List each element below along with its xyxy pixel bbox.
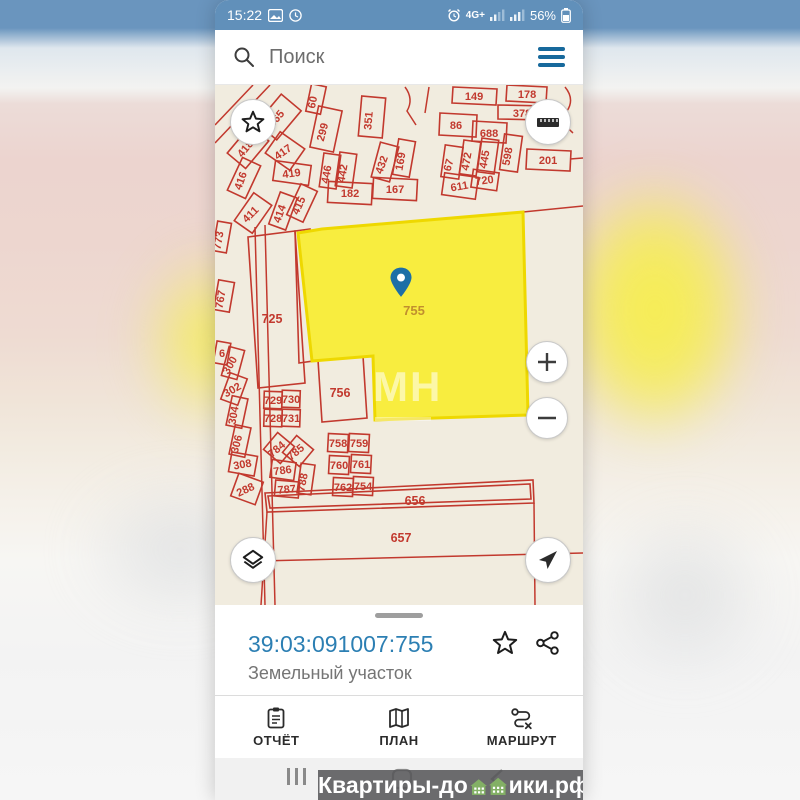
plan-map-icon <box>387 706 411 730</box>
layers-button[interactable] <box>230 537 276 583</box>
parcel-type-label: Земельный участок <box>248 663 412 684</box>
navigation-arrow-icon <box>536 548 560 572</box>
parcel-label: 729 <box>264 395 282 407</box>
plus-icon <box>535 350 559 374</box>
parcel-label: 756 <box>330 386 351 400</box>
action-tab-bar: ОТЧЁТ ПЛАН МАРШРУТ <box>215 695 583 758</box>
parcel-label: 288 <box>235 481 257 500</box>
tab-plan-label: ПЛАН <box>379 733 418 748</box>
site-watermark: Квартиры-до ики.рф <box>318 770 583 800</box>
phone-screenshot: 15:22 4G+ <box>215 0 583 800</box>
status-bar: 15:22 4G+ <box>215 0 583 30</box>
sheet-drag-handle[interactable] <box>375 613 423 618</box>
ruler-icon <box>534 108 562 136</box>
parcel-label: 598 <box>501 146 516 166</box>
backdrop-gray-blob-right <box>590 500 780 690</box>
parcel-label: 167 <box>386 184 404 196</box>
parcel-label: 788 <box>295 472 311 492</box>
parcel-label: 767 <box>215 289 229 309</box>
minus-icon <box>535 406 559 430</box>
parcel-label: 182 <box>341 188 359 200</box>
cadastral-number[interactable]: 39:03:091007:755 <box>248 631 433 658</box>
android-navigation-bar: Квартиры-до ики.рф <box>215 758 583 800</box>
search-bar[interactable]: Поиск <box>215 30 583 85</box>
parcel-label: 442 <box>336 163 351 183</box>
star-icon <box>240 109 266 135</box>
parcel-label: 656 <box>405 494 426 508</box>
selected-parcel-label: 755 <box>403 303 425 318</box>
parcel-label: 657 <box>391 531 412 545</box>
status-time: 15:22 <box>227 7 262 23</box>
parcel-label: 308 <box>232 458 252 473</box>
tab-report[interactable]: ОТЧЁТ <box>215 696 338 758</box>
tab-route[interactable]: МАРШРУТ <box>460 696 583 758</box>
location-pin-icon <box>387 266 415 302</box>
zoom-out-button[interactable] <box>526 397 568 439</box>
parcel-label: 761 <box>352 459 370 471</box>
report-clipboard-icon <box>264 706 288 730</box>
route-icon <box>510 706 534 730</box>
search-icon <box>233 46 255 68</box>
parcel-label: 758 <box>329 438 347 450</box>
parcel-label: 414 <box>271 202 289 224</box>
parcel-label: 730 <box>282 394 300 406</box>
parcel-label: 86 <box>450 120 462 132</box>
measure-button[interactable] <box>525 99 571 145</box>
share-button[interactable] <box>535 630 561 656</box>
search-input[interactable]: Поиск <box>269 46 324 69</box>
parcel-label: 67 <box>442 158 457 173</box>
parcel-label: 6 <box>219 348 225 360</box>
cadastral-parcels-layer: 6036529935114917837886688201418417419416… <box>215 85 583 605</box>
clock-notification-icon <box>289 9 302 22</box>
bottom-sheet[interactable]: 39:03:091007:755 Земельный участок <box>215 605 583 695</box>
menu-icon <box>538 47 565 51</box>
my-location-button[interactable] <box>525 537 571 583</box>
houses-icon <box>469 774 508 798</box>
gallery-notification-icon <box>268 9 283 22</box>
layers-icon <box>240 547 266 573</box>
favorite-star-button[interactable] <box>491 629 519 657</box>
parcel-label: 419 <box>282 167 302 181</box>
screenshot-stage: 15:22 4G+ <box>0 0 800 800</box>
parcel-label: 786 <box>273 464 293 478</box>
parcel-label: 611 <box>450 180 470 195</box>
zoom-in-button[interactable] <box>526 341 568 383</box>
parcel-label: 760 <box>330 460 348 472</box>
parcel-label: 169 <box>394 151 409 171</box>
tab-report-label: ОТЧЁТ <box>253 733 299 748</box>
tab-route-label: МАРШРУТ <box>487 733 557 748</box>
parcel-label: 762 <box>334 482 352 494</box>
parcel-label: 731 <box>282 413 300 425</box>
parcel-label: 178 <box>518 89 536 101</box>
parcel-label: 720 <box>475 174 495 188</box>
recents-button[interactable] <box>287 768 306 785</box>
map-view[interactable]: 6036529935114917837886688201418417419416… <box>215 85 583 605</box>
map-watermark: МН <box>373 363 442 411</box>
alarm-icon <box>447 8 461 22</box>
signal-bars-icon-1 <box>490 9 505 21</box>
backdrop-yellow-blob-right <box>555 175 755 445</box>
parcel-label: 415 <box>290 195 309 217</box>
parcel-label: 754 <box>354 481 373 493</box>
network-type-indicator: 4G+ <box>466 10 485 21</box>
signal-bars-icon-2 <box>510 9 525 21</box>
parcel-label: 472 <box>460 151 475 171</box>
parcel-label: 725 <box>262 312 283 326</box>
parcel-label: 759 <box>350 438 368 450</box>
tab-plan[interactable]: ПЛАН <box>338 696 461 758</box>
parcel-label: 304 <box>227 405 242 426</box>
map-watermark-bar <box>375 417 431 421</box>
parcel-label: 201 <box>539 155 557 167</box>
parcel-label: 351 <box>362 111 376 130</box>
parcel-label: 773 <box>215 230 227 250</box>
parcel-label: 445 <box>478 149 493 169</box>
battery-percent: 56% <box>530 8 556 23</box>
menu-button[interactable] <box>538 47 565 67</box>
favorites-button[interactable] <box>230 99 276 145</box>
parcel-label: 728 <box>264 413 282 425</box>
watermark-text-left: Квартиры-до <box>318 772 468 799</box>
watermark-text-right: ики.рф <box>509 772 583 799</box>
parcel-label: 299 <box>315 122 331 143</box>
battery-icon <box>561 8 571 23</box>
parcel-label: 787 <box>277 483 296 497</box>
parcel-label: 149 <box>465 91 483 103</box>
